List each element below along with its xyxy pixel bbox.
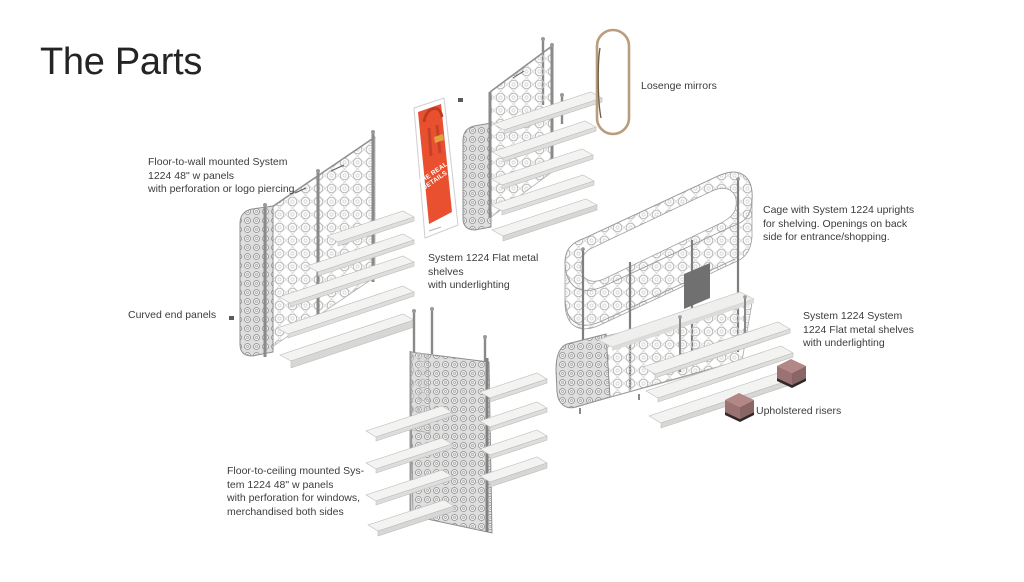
label-floor-to-wall: Floor-to-wall mounted System 1224 48" w … [148, 156, 418, 197]
page-title: The Parts [40, 41, 202, 84]
label-losenge-mirrors: Losenge mirrors [641, 80, 911, 94]
label-system-1224-shelves: System 1224 System 1224 Flat metal shelv… [803, 310, 1024, 351]
label-cage: Cage with System 1224 uprights for shelv… [763, 204, 1024, 245]
curved-end-panel [240, 206, 273, 356]
flat-shelves-fixture-illustration [458, 37, 602, 241]
label-upholstered-risers: Upholstered risers [756, 405, 1024, 419]
label-floor-to-ceiling: Floor-to-ceiling mounted Sys- tem 1224 4… [227, 465, 497, 519]
curved-end-panel [463, 123, 491, 230]
label-flat-metal-shelves: System 1224 Flat metal shelves with unde… [428, 252, 698, 293]
label-curved-end-panels: Curved end panels [128, 309, 398, 323]
slide-canvas: The Parts Floor-to-wall mounted System 1… [0, 0, 1024, 582]
cage-curved-end [556, 334, 610, 408]
losenge-mirror [597, 30, 629, 134]
